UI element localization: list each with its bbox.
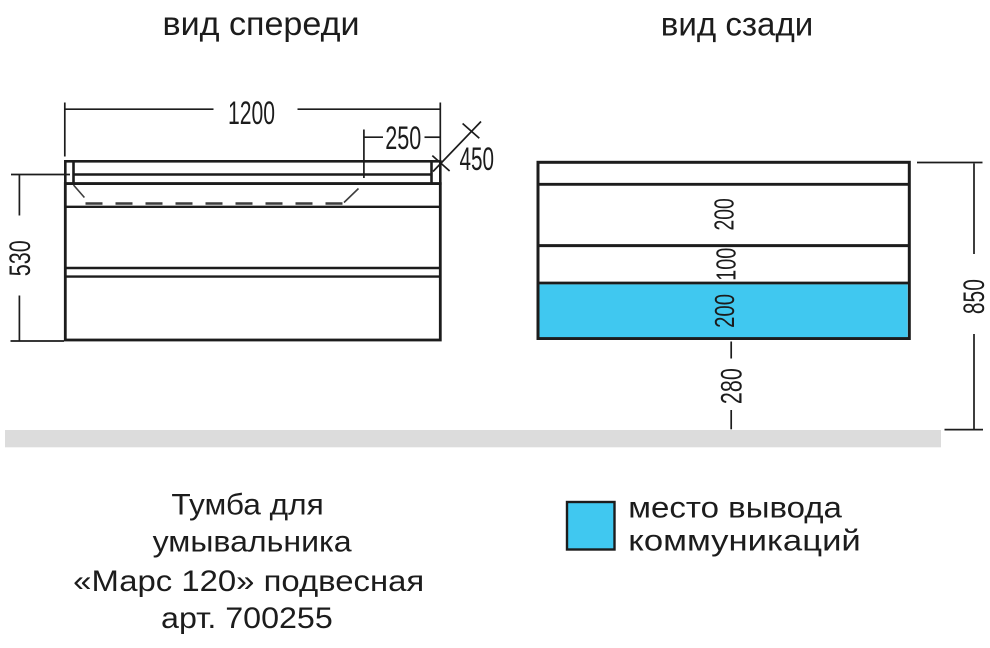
svg-text:арт. 700255: арт. 700255 bbox=[161, 602, 333, 635]
svg-text:100: 100 bbox=[711, 248, 742, 281]
svg-text:280: 280 bbox=[716, 368, 749, 404]
svg-text:250: 250 bbox=[385, 120, 421, 156]
svg-text:Тумба для: Тумба для bbox=[171, 489, 323, 522]
svg-text:вид спереди: вид спереди bbox=[163, 5, 360, 42]
svg-text:вид сзади: вид сзади bbox=[661, 6, 814, 43]
svg-text:место вывода: место вывода bbox=[628, 491, 842, 524]
svg-text:«Марс 120» подвесная: «Марс 120» подвесная bbox=[73, 565, 424, 598]
svg-text:200: 200 bbox=[709, 294, 740, 328]
svg-text:850: 850 bbox=[958, 279, 990, 314]
svg-text:450: 450 bbox=[460, 141, 495, 177]
svg-text:200: 200 bbox=[709, 198, 740, 230]
svg-text:1200: 1200 bbox=[228, 95, 275, 131]
svg-text:коммуникаций: коммуникаций bbox=[628, 525, 861, 558]
svg-text:530: 530 bbox=[4, 240, 37, 276]
svg-text:умывальника: умывальника bbox=[153, 526, 352, 559]
